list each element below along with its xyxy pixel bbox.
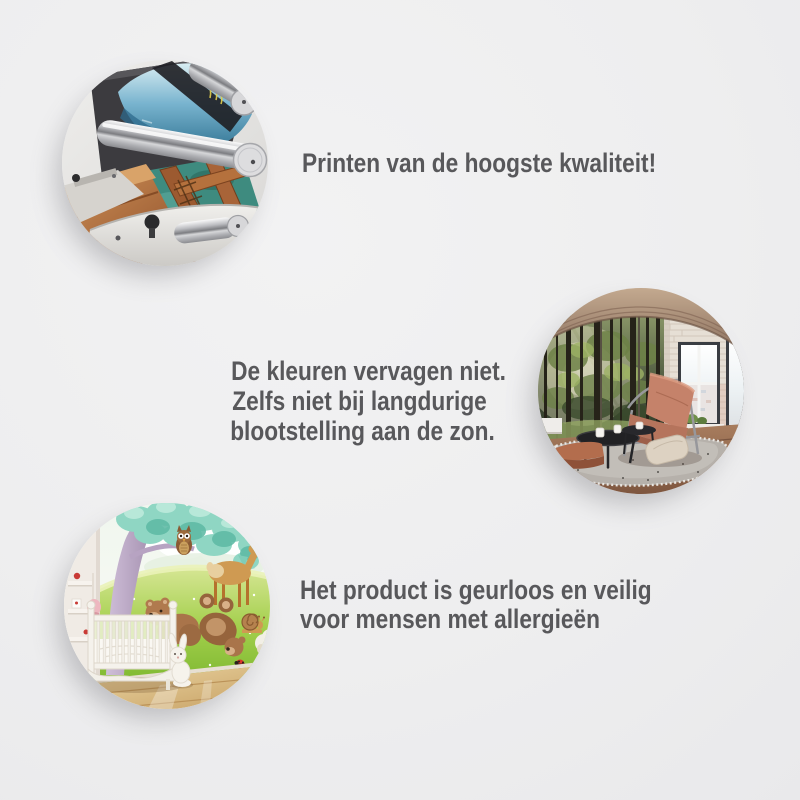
fade-resistant-photo bbox=[538, 288, 744, 494]
allergy-safe-caption: Het product is geurloos en veilig voor m… bbox=[300, 576, 719, 634]
product-benefits-infographic: Printen van de hoogste kwaliteit! bbox=[0, 0, 800, 800]
caption-line: De kleuren vervagen niet. bbox=[205, 356, 515, 386]
caption-line: blootstelling aan de zon. bbox=[205, 416, 515, 446]
print-quality-photo bbox=[62, 60, 268, 266]
caption-line: voor mensen met allergieën bbox=[300, 605, 719, 634]
printing-machine-illustration bbox=[62, 60, 268, 266]
nursery-cartoon-mural-illustration bbox=[64, 503, 270, 709]
fade-resistant-caption: De kleuren vervagen niet. Zelfs niet bij… bbox=[205, 356, 515, 446]
print-quality-caption: Printen van de hoogste kwaliteit! bbox=[302, 148, 724, 178]
allergy-safe-photo bbox=[64, 503, 270, 709]
caption-line: Zelfs niet bij langdurige bbox=[205, 386, 515, 416]
caption-line: Het product is geurloos en veilig bbox=[300, 576, 719, 605]
caption-line: Printen van de hoogste kwaliteit! bbox=[302, 148, 724, 178]
living-room-forest-mural-illustration bbox=[538, 288, 744, 494]
